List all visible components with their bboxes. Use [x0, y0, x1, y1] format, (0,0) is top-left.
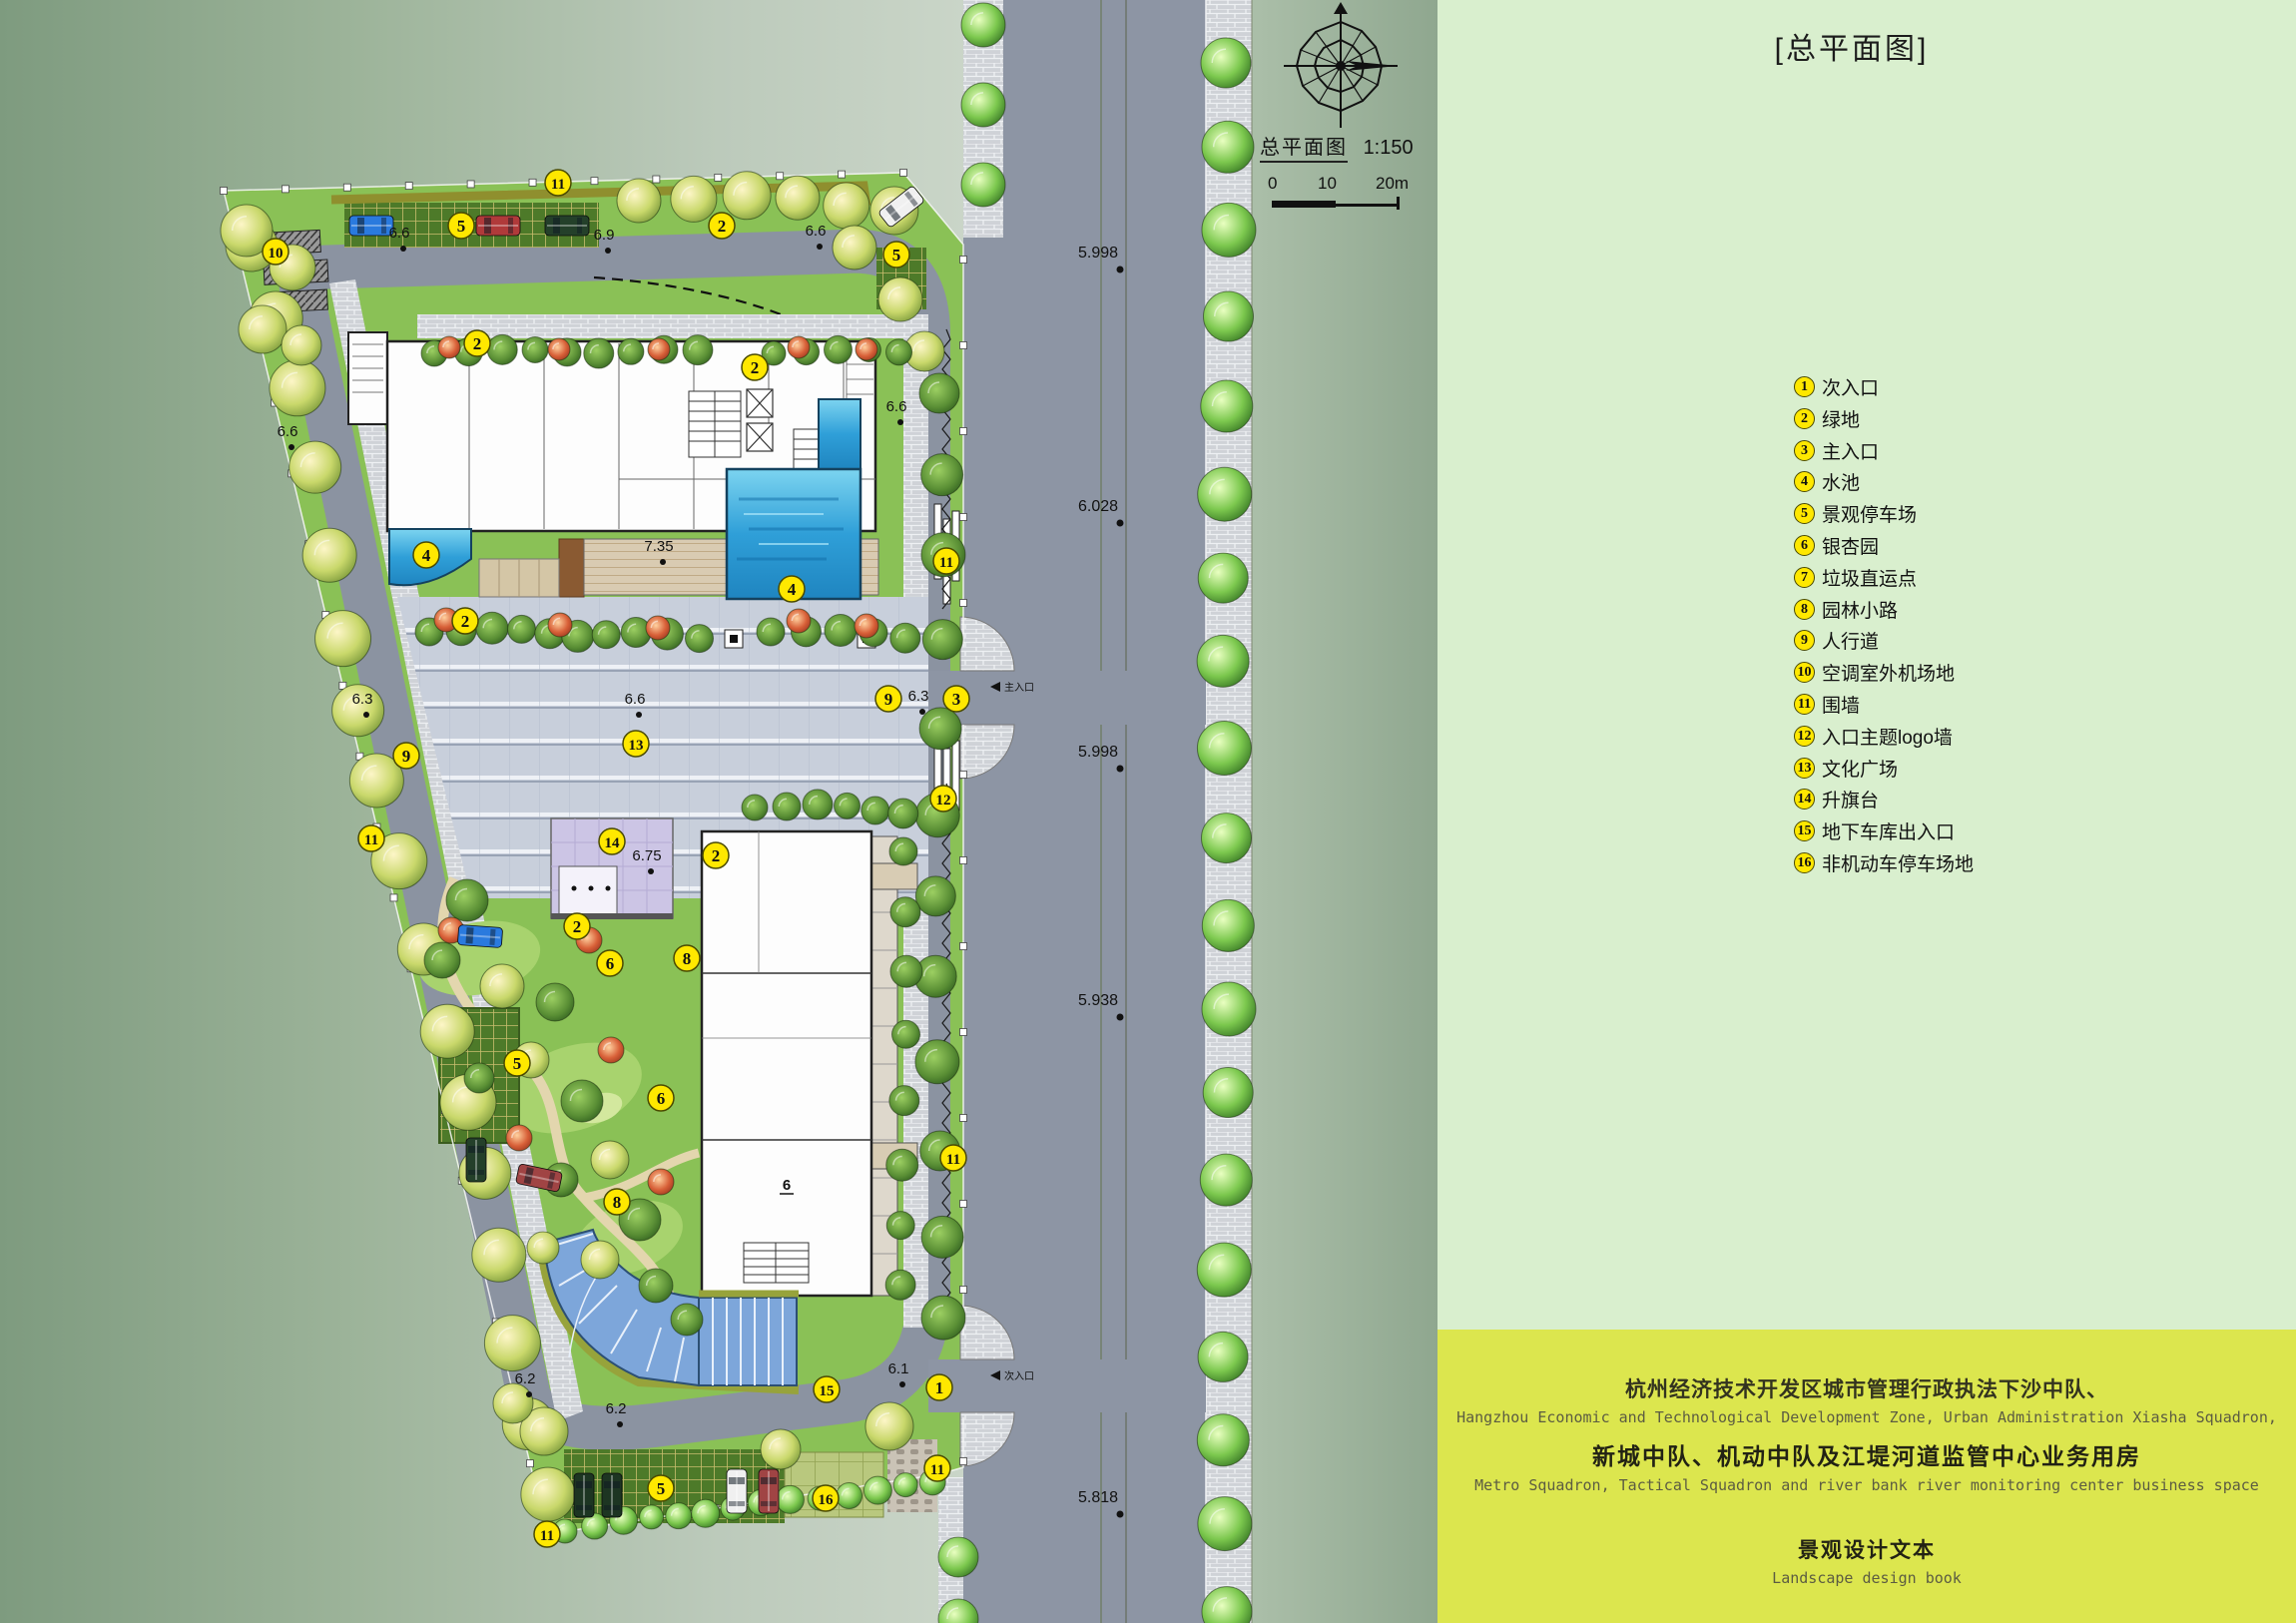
project-name-en-1: Hangzhou Economic and Technological Deve… — [1437, 1408, 2296, 1426]
tree-symbol — [282, 325, 321, 365]
legend-item-label: 水池 — [1822, 468, 1860, 495]
plan-marker-9: 9 — [875, 686, 901, 712]
plan-marker-2: 2 — [464, 330, 490, 356]
legend-item-label: 景观停车场 — [1822, 500, 1917, 527]
tree-symbol — [1202, 813, 1252, 863]
plan-marker-5: 5 — [448, 213, 474, 239]
tree-symbol — [472, 1228, 526, 1282]
scale-tick-20: 20m — [1376, 174, 1409, 194]
tree-symbol — [1197, 1414, 1249, 1466]
project-name-en-2: Metro Squadron, Tactical Squadron and ri… — [1437, 1476, 2296, 1494]
tree-symbol — [886, 339, 912, 365]
legend-item-label: 升旗台 — [1822, 786, 1879, 812]
tree-symbol — [888, 799, 918, 828]
tree-symbol — [1197, 635, 1249, 687]
document-title-zh: 景观设计文本 — [1437, 1534, 2296, 1564]
north-walk — [417, 314, 928, 338]
tree-symbol — [648, 338, 670, 360]
building-number-label: 6 — [783, 1177, 791, 1194]
svg-text:6: 6 — [606, 954, 615, 973]
plan-marker-9: 9 — [393, 743, 419, 769]
legend-number-badge: 3 — [1794, 440, 1815, 461]
north-arrow-icon — [1276, 0, 1406, 132]
legend-item: 11围墙 — [1794, 694, 1974, 715]
tree-symbol — [671, 176, 717, 222]
tree-symbol — [961, 3, 1005, 47]
car-symbol — [727, 1469, 747, 1513]
road-spot-elevation: 5.998 — [1078, 245, 1118, 262]
tree-symbol — [581, 1241, 619, 1279]
tree-symbol — [837, 1483, 862, 1509]
tree-symbol — [302, 528, 356, 582]
tree-symbol — [1198, 1332, 1248, 1381]
car-symbol — [602, 1473, 622, 1517]
tree-symbol — [1198, 1497, 1252, 1551]
tree-symbol — [686, 625, 714, 653]
tree-symbol — [648, 1169, 674, 1195]
road-elevation-label: 6.1 — [888, 1360, 909, 1377]
road-elevation-label: 6.2 — [515, 1370, 536, 1387]
legend-item: 9人行道 — [1794, 630, 1974, 651]
svg-text:11: 11 — [939, 555, 953, 571]
tree-symbol — [493, 1383, 533, 1423]
svg-text:2: 2 — [751, 358, 760, 377]
tree-symbol — [666, 1503, 692, 1529]
tree-symbol — [618, 338, 644, 364]
tree-symbol — [921, 1296, 965, 1340]
svg-text:6: 6 — [657, 1089, 666, 1108]
tree-symbol — [885, 1270, 915, 1300]
tree-symbol — [889, 837, 917, 865]
legend-item-label: 垃圾直运点 — [1822, 564, 1917, 591]
tree-symbol — [922, 620, 962, 660]
plan-marker-11: 11 — [940, 1145, 966, 1171]
svg-text:2: 2 — [473, 334, 482, 353]
tree-symbol — [889, 1086, 919, 1116]
tree-symbol — [438, 336, 460, 358]
tree-symbol — [787, 609, 811, 633]
legend-number-badge: 9 — [1794, 630, 1815, 651]
tree-symbol — [892, 1020, 920, 1048]
boundary-post — [282, 186, 288, 193]
tree-symbol — [835, 793, 861, 818]
tree-symbol — [646, 616, 670, 640]
plan-marker-14: 14 — [599, 828, 625, 854]
tree-symbol — [639, 1269, 673, 1303]
tree-symbol — [824, 335, 852, 363]
legend-item: 2绿地 — [1794, 408, 1974, 429]
legend-item-label: 围墙 — [1822, 691, 1860, 718]
site-plan-drawing: 6.66.96.66.66.67.356.36.66.36.756.26.16.… — [0, 0, 1437, 1623]
road-elevation-label: 6.3 — [352, 691, 373, 708]
legend-item-label: 人行道 — [1822, 627, 1879, 654]
legend-item-label: 非机动车停车场地 — [1822, 849, 1974, 876]
tree-symbol — [723, 172, 771, 220]
project-title-box: 杭州经济技术开发区城市管理行政执法下沙中队、 Hangzhou Economic… — [1437, 1330, 2296, 1623]
tree-symbol — [861, 797, 889, 824]
tree-symbol — [584, 338, 614, 368]
tree-symbol — [420, 1004, 474, 1058]
scale-bar-tick — [1397, 197, 1400, 210]
scale-tick-0: 0 — [1268, 174, 1277, 194]
road-spot-elevation: 6.028 — [1078, 498, 1118, 515]
tree-symbol — [893, 1473, 917, 1497]
plan-marker-10: 10 — [263, 239, 288, 265]
tree-symbol — [692, 1499, 720, 1527]
road-elevation-label: 6.9 — [594, 227, 615, 244]
svg-text:5: 5 — [457, 217, 466, 236]
plan-marker-2: 2 — [564, 913, 590, 939]
plan-marker-4: 4 — [779, 576, 805, 602]
master-plan-sheet: { "title": "[总平面图]", "scale_block": { "l… — [0, 0, 2296, 1623]
plan-marker-11: 11 — [933, 548, 959, 574]
tree-symbol — [890, 623, 920, 653]
tree-symbol — [464, 1063, 494, 1093]
scale-title: 总平面图 1:150 — [1260, 131, 1414, 160]
legend-number-badge: 10 — [1794, 662, 1815, 683]
tree-symbol — [671, 1304, 703, 1336]
legend-number-badge: 14 — [1794, 789, 1815, 810]
boundary-post — [900, 170, 907, 177]
boundary-post — [960, 1201, 967, 1208]
road-elevation-label: 6.2 — [606, 1400, 627, 1417]
svg-text:11: 11 — [551, 177, 565, 193]
legend-item: 6银杏园 — [1794, 535, 1974, 556]
legend-item-label: 银杏园 — [1822, 532, 1879, 559]
tree-symbol — [480, 964, 524, 1008]
tree-symbol — [890, 897, 920, 927]
svg-text:16: 16 — [819, 1492, 835, 1508]
svg-text:9: 9 — [402, 747, 411, 766]
tree-symbol — [776, 176, 820, 220]
svg-text:13: 13 — [629, 738, 644, 754]
tree-symbol — [315, 611, 371, 667]
legend-number-badge: 8 — [1794, 599, 1815, 620]
tree-symbol — [919, 708, 961, 750]
plan-marker-6: 6 — [648, 1085, 674, 1111]
plan-marker-2: 2 — [742, 354, 768, 380]
plan-marker-8: 8 — [674, 945, 700, 971]
step-rail — [559, 539, 584, 597]
svg-text:8: 8 — [683, 949, 692, 968]
boundary-post — [960, 257, 967, 264]
legend-item-label: 主入口 — [1822, 437, 1879, 464]
legend-item: 1次入口 — [1794, 376, 1974, 397]
tree-symbol — [446, 879, 488, 921]
car-symbol — [466, 1138, 486, 1182]
tree-symbol — [1198, 553, 1248, 603]
sheet-title: [总平面图] — [1437, 24, 2266, 68]
road-elevation-label: 6.3 — [908, 688, 929, 705]
tree-symbol — [1197, 722, 1251, 776]
road-elevation-label: 6.6 — [389, 225, 410, 242]
plan-marker-2: 2 — [709, 213, 735, 239]
plan-marker-6: 6 — [597, 950, 623, 976]
svg-text:14: 14 — [605, 835, 621, 851]
plan-marker-15: 15 — [814, 1376, 840, 1402]
legend-item: 13文化广场 — [1794, 758, 1974, 779]
svg-text:11: 11 — [946, 1152, 960, 1168]
road-elevation-label: 6.6 — [625, 691, 646, 708]
boundary-post — [960, 428, 967, 435]
legend-item: 15地下车库出入口 — [1794, 820, 1974, 841]
boundary-post — [960, 514, 967, 521]
legend-item-label: 入口主题logo墙 — [1822, 723, 1953, 750]
tree-symbol — [878, 277, 922, 321]
boundary-post — [960, 600, 967, 607]
tree-symbol — [598, 1037, 624, 1063]
svg-text:1: 1 — [935, 1378, 944, 1397]
legend-number-badge: 15 — [1794, 820, 1815, 841]
legend-item-label: 文化广场 — [1822, 755, 1898, 782]
svg-text:4: 4 — [422, 546, 431, 565]
legend-list: 1次入口2绿地3主入口4水池5景观停车场6银杏园7垃圾直运点8园林小路9人行道1… — [1794, 376, 1974, 884]
plan-marker-11: 11 — [545, 170, 571, 196]
svg-text:11: 11 — [930, 1462, 944, 1478]
car-symbol — [545, 216, 589, 236]
road-elevation-label: 7.35 — [644, 538, 673, 555]
svg-text:5: 5 — [513, 1054, 522, 1073]
legend-number-badge: 12 — [1794, 726, 1815, 747]
boundary-post — [715, 174, 722, 181]
tree-symbol — [536, 983, 574, 1021]
legend-number-badge: 6 — [1794, 535, 1815, 556]
legend-panel: [总平面图] 1次入口2绿地3主入口4水池5景观停车场6银杏园7垃圾直运点8园林… — [1437, 0, 2296, 1330]
scale-bar — [1272, 201, 1336, 208]
tree-symbol — [886, 1212, 914, 1240]
tree-symbol — [1197, 1243, 1251, 1297]
tree-symbol — [548, 613, 572, 637]
plan-marker-13: 13 — [623, 731, 649, 757]
tree-symbol — [803, 790, 833, 819]
tree-symbol — [487, 334, 517, 364]
boundary-post — [467, 181, 474, 188]
legend-item: 12入口主题logo墙 — [1794, 726, 1974, 747]
project-name-zh-2: 新城中队、机动中队及江堤河道监管中心业务用房 — [1437, 1437, 2296, 1471]
tree-symbol — [919, 373, 959, 413]
tree-symbol — [921, 454, 963, 496]
boundary-post — [777, 173, 784, 180]
legend-number-badge: 1 — [1794, 376, 1815, 397]
legend-item: 4水池 — [1794, 471, 1974, 492]
tree-symbol — [761, 1429, 801, 1469]
tree-symbol — [617, 179, 661, 223]
tree-symbol — [506, 1125, 532, 1151]
tree-symbol — [773, 793, 801, 820]
svg-text:2: 2 — [573, 917, 582, 936]
tree-symbol — [640, 1505, 664, 1529]
boundary-post — [526, 1460, 533, 1467]
entrance-label: 主入口 — [1004, 682, 1034, 694]
tree-symbol — [776, 1485, 804, 1513]
road-spot-elevation: 5.938 — [1078, 992, 1118, 1009]
svg-text:5: 5 — [657, 1479, 666, 1498]
legend-item-label: 园林小路 — [1822, 596, 1898, 623]
legend-number-badge: 16 — [1794, 852, 1815, 873]
svg-text:2: 2 — [718, 217, 727, 236]
tree-symbol — [833, 226, 876, 270]
tree-symbol — [865, 1402, 913, 1450]
legend-number-badge: 4 — [1794, 471, 1815, 492]
boundary-post — [653, 176, 660, 183]
tree-symbol — [961, 163, 1005, 207]
tree-symbol — [1203, 1067, 1253, 1117]
plan-marker-12: 12 — [930, 786, 956, 811]
boundary-post — [960, 1458, 967, 1465]
tree-symbol — [856, 338, 877, 360]
plan-marker-3: 3 — [943, 686, 969, 712]
boundary-post — [591, 178, 598, 185]
tree-symbol — [592, 621, 620, 649]
tree-symbol — [921, 1216, 963, 1258]
legend-item-label: 地下车库出入口 — [1822, 817, 1955, 844]
legend-number-badge: 7 — [1794, 567, 1815, 588]
plan-marker-11: 11 — [358, 825, 384, 851]
tree-symbol — [1201, 380, 1253, 432]
legend-item-label: 空调室外机场地 — [1822, 659, 1955, 686]
tree-symbol — [855, 614, 878, 638]
plan-marker-1: 1 — [926, 1374, 952, 1400]
plan-marker-4: 4 — [413, 542, 439, 568]
scale-label: 总平面图 — [1260, 137, 1348, 163]
scale-bar-segment — [1336, 204, 1398, 207]
tree-symbol — [961, 83, 1005, 127]
tree-symbol — [1202, 203, 1256, 257]
project-name-zh-1: 杭州经济技术开发区城市管理行政执法下沙中队、 — [1437, 1373, 2296, 1403]
road-elevation-label: 6.75 — [632, 847, 661, 864]
svg-text:4: 4 — [788, 580, 797, 599]
scale-ratio: 1:150 — [1364, 137, 1414, 159]
tree-symbol — [890, 955, 922, 987]
tree-symbol — [886, 1149, 918, 1181]
road-spot-elevation: 5.818 — [1078, 1489, 1118, 1506]
tree-symbol — [527, 1232, 559, 1264]
plan-marker-5: 5 — [504, 1050, 530, 1076]
tree-symbol — [239, 305, 287, 353]
svg-text:11: 11 — [364, 832, 378, 848]
car-symbol — [457, 924, 502, 947]
boundary-post — [960, 1115, 967, 1122]
tree-symbol — [1202, 121, 1254, 173]
legend-item: 16非机动车停车场地 — [1794, 852, 1974, 873]
legend-number-badge: 11 — [1794, 694, 1815, 715]
legend-number-badge: 13 — [1794, 758, 1815, 779]
svg-text:2: 2 — [461, 612, 470, 631]
svg-text:15: 15 — [820, 1383, 835, 1399]
boundary-post — [960, 1287, 967, 1294]
legend-item: 3主入口 — [1794, 440, 1974, 461]
entrance-label: 次入口 — [1004, 1369, 1034, 1382]
tree-symbol — [591, 1141, 629, 1179]
tree-symbol — [484, 1316, 540, 1371]
svg-text:9: 9 — [884, 690, 893, 709]
legend-item: 14升旗台 — [1794, 789, 1974, 810]
svg-text:12: 12 — [936, 793, 951, 809]
tree-symbol — [548, 338, 570, 360]
tree-symbol — [938, 1537, 978, 1577]
svg-text:8: 8 — [613, 1193, 622, 1212]
tree-symbol — [522, 336, 548, 362]
boundary-post — [390, 894, 397, 901]
boundary-post — [839, 171, 846, 178]
boundary-post — [960, 943, 967, 950]
car-symbol — [574, 1473, 594, 1517]
document-title-en: Landscape design book — [1437, 1569, 2296, 1587]
tree-symbol — [1202, 982, 1256, 1036]
tree-symbol — [508, 615, 536, 643]
plan-marker-11: 11 — [534, 1521, 560, 1547]
legend-item-label: 绿地 — [1822, 405, 1860, 432]
plan-marker-16: 16 — [813, 1485, 839, 1511]
tree-symbol — [757, 618, 785, 646]
legend-item: 7垃圾直运点 — [1794, 567, 1974, 588]
boundary-post — [405, 183, 412, 190]
car-symbol — [349, 216, 393, 236]
legend-item: 10空调室外机场地 — [1794, 662, 1974, 683]
svg-text:10: 10 — [269, 246, 284, 262]
secondary-entrance-road — [928, 1359, 1206, 1412]
boundary-post — [960, 857, 967, 864]
car-symbol — [476, 216, 520, 236]
tree-symbol — [915, 876, 955, 916]
car-symbol — [759, 1469, 779, 1513]
tree-symbol — [788, 336, 810, 358]
tree-symbol — [1198, 467, 1252, 521]
plan-marker-2: 2 — [452, 608, 478, 634]
plan-marker-5: 5 — [883, 242, 909, 268]
road-elevation-label: 6.6 — [886, 398, 907, 415]
svg-text:5: 5 — [892, 246, 901, 265]
road-elevation-label: 6.6 — [278, 423, 298, 440]
tree-symbol — [424, 942, 460, 978]
road-spot-elevation: 5.998 — [1078, 744, 1118, 761]
tree-symbol — [270, 360, 325, 416]
legend-item: 5景观停车场 — [1794, 503, 1974, 524]
boundary-post — [529, 179, 536, 186]
tree-symbol — [825, 614, 857, 646]
legend-item: 8园林小路 — [1794, 599, 1974, 620]
tree-symbol — [742, 795, 768, 820]
scale-tick-10: 10 — [1318, 174, 1337, 194]
legend-number-badge: 5 — [1794, 503, 1815, 524]
boundary-post — [960, 772, 967, 779]
tree-symbol — [1200, 1154, 1252, 1206]
tree-symbol — [824, 183, 869, 229]
svg-text:3: 3 — [952, 690, 961, 709]
tree-symbol — [1202, 899, 1254, 951]
tree-symbol — [289, 441, 341, 493]
tree-symbol — [915, 1040, 959, 1084]
svg-text:11: 11 — [540, 1528, 554, 1544]
road-elevation-label: 6.6 — [806, 223, 827, 240]
boundary-post — [343, 184, 350, 191]
legend-number-badge: 2 — [1794, 408, 1815, 429]
tree-symbol — [863, 1476, 891, 1504]
plan-marker-2: 2 — [703, 842, 729, 868]
legend-item-label: 次入口 — [1822, 373, 1879, 400]
boundary-post — [960, 1029, 967, 1036]
plan-marker-5: 5 — [648, 1475, 674, 1501]
svg-text:2: 2 — [712, 846, 721, 865]
plan-marker-8: 8 — [604, 1189, 630, 1215]
boundary-post — [221, 188, 228, 195]
plan-marker-11: 11 — [924, 1455, 950, 1481]
tree-symbol — [476, 612, 508, 644]
boundary-post — [960, 342, 967, 349]
office-building — [702, 831, 917, 1296]
tree-symbol — [521, 1467, 575, 1521]
tree-symbol — [561, 1080, 603, 1122]
